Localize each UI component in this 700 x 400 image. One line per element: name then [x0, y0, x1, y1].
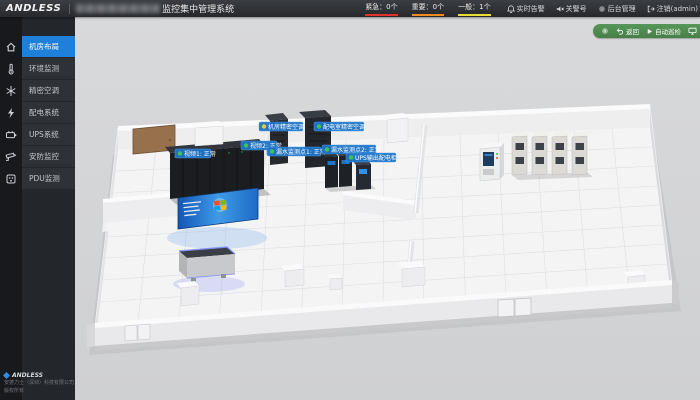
svg-text:UPS输出配电柜: UPS输出配电柜 — [355, 154, 397, 162]
aircon-icon — [0, 80, 22, 101]
footer-copyright: 版权所有 — [4, 387, 74, 395]
logout-button[interactable]: 注销(admin) — [647, 4, 698, 14]
status-label-aircon-room[interactable]: 机房精密空调 — [259, 122, 304, 131]
view-settings-button[interactable] — [601, 27, 609, 35]
svg-text:配电室精密空调: 配电室精密空调 — [323, 123, 365, 131]
logo-divider — [69, 4, 70, 14]
mute-icon — [556, 5, 564, 13]
wall-cabinet-middle[interactable] — [383, 113, 408, 143]
sidebar-item-environment[interactable]: 环境监测 — [0, 58, 75, 79]
logout-icon — [647, 5, 655, 13]
status-label-leak1[interactable]: 漏水监测点1: 正常 — [267, 147, 326, 156]
pdu-icon — [0, 168, 22, 189]
alarm-minor-count[interactable]: 一般：1个 — [458, 2, 490, 16]
thermometer-icon — [0, 58, 22, 79]
power-icon — [0, 102, 22, 123]
top-menu: 实时告警 关警号 后台管理 注销(admin) — [507, 4, 698, 14]
brand-diamond-icon — [3, 372, 10, 379]
play-icon — [646, 28, 653, 35]
app-title: 监控集中管理系统 — [162, 2, 234, 15]
camera-icon — [0, 146, 22, 167]
gear-icon — [598, 5, 606, 13]
svg-text:机房精密空调: 机房精密空调 — [268, 123, 304, 131]
alarm-critical-count[interactable]: 紧急：0个 — [365, 2, 397, 16]
room-3d-view[interactable]: 视频1: 正常 视频2: 正常 漏水监测点1: 正常 漏水监测点2: 正常 UP — [75, 17, 700, 400]
wall-cabinet-left[interactable] — [191, 121, 223, 146]
svg-text:漏水监测点1: 正常: 漏水监测点1: 正常 — [276, 148, 326, 156]
sidebar-menu: 机房布局 环境监测 精密空调 配电系统 UPS系统 — [0, 36, 75, 189]
battery-cabinets[interactable] — [512, 131, 593, 180]
auto-patrol-button[interactable]: 自动巡检 — [646, 26, 681, 36]
footer-brand: ANDLESS — [12, 372, 43, 379]
bell-icon — [507, 5, 515, 13]
realtime-alarm-button[interactable]: 实时告警 — [507, 4, 545, 14]
sidebar-item-power[interactable]: 配电系统 — [0, 102, 75, 123]
status-label-ups-output[interactable]: UPS输出配电柜 — [346, 153, 397, 162]
screen-floor-glow — [167, 227, 267, 249]
sidebar-item-ups[interactable]: UPS系统 — [0, 124, 75, 145]
back-button[interactable]: 返回 — [616, 26, 639, 36]
svg-text:视频1: 正常: 视频1: 正常 — [184, 150, 216, 158]
status-label-video1[interactable]: 视频1: 正常 — [175, 149, 216, 158]
status-label-aircon-power[interactable]: 配电室精密空调 — [314, 122, 365, 131]
footer-company: 安德力士（深圳）科技有限公司 — [4, 379, 74, 387]
alarm-major-count[interactable]: 重要：0个 — [412, 2, 444, 16]
app-logo: ANDLESS — [6, 3, 61, 14]
view-toolbar: 返回 自动巡检 — [593, 24, 700, 38]
datacenter-monitoring-app: { "topbar": { "logo": "ANDLESS", "title"… — [0, 0, 700, 400]
gear-icon — [601, 27, 609, 35]
sidebar-item-security[interactable]: 安防监控 — [0, 146, 75, 167]
sidebar-item-room-layout[interactable]: 机房布局 — [0, 36, 75, 57]
top-bar: ANDLESS 监控集中管理系统 紧急：0个 重要：0个 一般：1个 实时告警 … — [0, 0, 700, 17]
redacted-site-name — [76, 4, 160, 13]
sidebar-item-aircon[interactable]: 精密空调 — [0, 80, 75, 101]
admin-console-button[interactable]: 后台管理 — [598, 4, 636, 14]
sidebar-footer: ANDLESS 安德力士（深圳）科技有限公司 版权所有 — [4, 372, 74, 395]
svg-text:漏水监测点2: 正常: 漏水监测点2: 正常 — [331, 146, 381, 154]
main-content: 返回 自动巡检 — [75, 17, 700, 400]
control-cabinet[interactable] — [480, 142, 504, 181]
home-icon — [0, 36, 22, 57]
fullscreen-button[interactable] — [688, 27, 697, 35]
undo-icon — [616, 27, 624, 35]
alarm-counters: 紧急：0个 重要：0个 一般：1个 — [365, 2, 490, 16]
status-label-leak2[interactable]: 漏水监测点2: 正常 — [322, 145, 381, 154]
sidebar-item-pdu[interactable]: PDU监测 — [0, 168, 75, 189]
sidebar: 机房布局 环境监测 精密空调 配电系统 UPS系统 — [0, 17, 75, 400]
monitor-icon — [688, 27, 697, 35]
mute-alarm-button[interactable]: 关警号 — [556, 4, 587, 14]
battery-icon — [0, 124, 22, 145]
